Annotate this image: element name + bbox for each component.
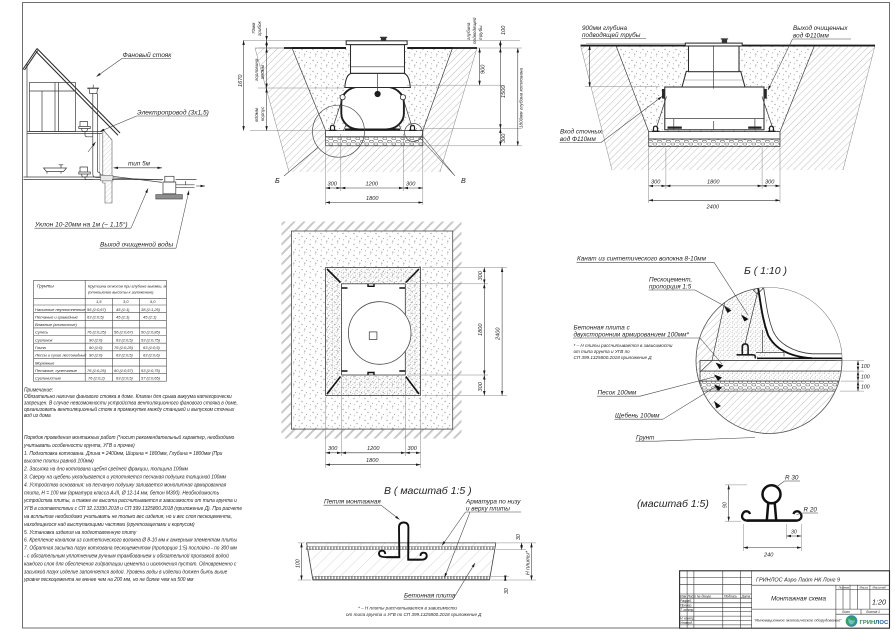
- svg-text:1800: 1800: [366, 458, 379, 464]
- svg-text:Канат из синтетического волокн: Канат из синтетического волокна 8-10мм: [577, 256, 707, 263]
- svg-text:100: 100: [501, 25, 507, 35]
- svg-text:Насыпные неуплотненные: Насыпные неуплотненные: [35, 307, 86, 312]
- svg-text:60 (1:0,57): 60 (1:0,57): [114, 368, 134, 373]
- svg-text:300: 300: [765, 179, 775, 185]
- svg-text:Лессы и сухие лессовидные: Лессы и сухие лессовидные: [34, 353, 87, 358]
- svg-text:корпус: корпус: [260, 106, 265, 121]
- svg-text:45 (1:1): 45 (1:1): [143, 315, 157, 320]
- svg-text:Петля монтажная: Петля монтажная: [324, 499, 381, 506]
- svg-text:1500: 1500: [501, 85, 507, 98]
- svg-text:600мм: 600мм: [254, 107, 259, 122]
- svg-text:Крутизна откосов при глубине в: Крутизна откосов при глубине выемки, м: [88, 284, 166, 289]
- svg-text:1,5: 1,5: [96, 299, 102, 304]
- svg-text:Масштаб: Масштаб: [873, 585, 887, 589]
- svg-text:учитывать особенности грунта,: учитывать особенности грунта, УГВ и проч…: [23, 443, 135, 449]
- svg-text:R 30: R 30: [785, 475, 799, 482]
- svg-text:100: 100: [296, 559, 302, 568]
- svg-text:Бетонная плита: Бетонная плита: [404, 593, 456, 600]
- svg-text:Арматура по низу: Арматура по низу: [465, 499, 521, 506]
- svg-text:тип 5м: тип 5м: [128, 161, 151, 168]
- svg-text:1670: 1670: [238, 74, 244, 87]
- svg-text:Литера: Литера: [838, 585, 850, 589]
- svg-text:устройства плиты, а также ее в: устройства плиты, а также ее высота расс…: [23, 497, 237, 504]
- svg-text:(отношение высоты к заложению): (отношение высоты к заложению): [88, 290, 154, 295]
- svg-text:и верху плиты: и верху плиты: [466, 506, 510, 513]
- svg-text:Т. контр.: Т. контр.: [680, 608, 694, 612]
- svg-text:76 (1:0,25): 76 (1:0,25): [114, 345, 134, 350]
- svg-text:Выход очищенных: Выход очищенных: [793, 24, 848, 32]
- svg-text:240: 240: [763, 553, 774, 559]
- svg-text:Порядок проведения монтажных р: Порядок проведения монтажных работ (*нос…: [24, 434, 235, 441]
- svg-text:30: 30: [516, 534, 522, 540]
- svg-text:38 (1:1,25): 38 (1:1,25): [141, 307, 161, 312]
- svg-text:вод Ф110мм: вод Ф110мм: [793, 32, 829, 40]
- svg-text:Б ( 1:10 ): Б ( 1:10 ): [744, 265, 787, 277]
- svg-text:Монтажная схема: Монтажная схема: [771, 596, 827, 603]
- svg-text:на всплытие необходимо учитыв: на всплытие необходимо учитывать не толь…: [24, 514, 232, 520]
- svg-text:800мм: 800мм: [260, 64, 265, 79]
- svg-text:300: 300: [651, 179, 661, 185]
- svg-text:(масштаб 1:5): (масштаб 1:5): [637, 498, 709, 510]
- svg-text:76 (1:0,2): 76 (1:0,2): [88, 376, 105, 381]
- svg-text:Н. контр.: Н. контр.: [680, 617, 695, 621]
- svg-text:300: 300: [501, 133, 507, 143]
- svg-text:Суглинок: Суглинок: [35, 337, 53, 342]
- svg-text:R 20: R 20: [804, 507, 818, 514]
- svg-text:Щебень 100мм: Щебень 100мм: [615, 412, 660, 420]
- svg-text:Электропровод (3х1,5): Электропровод (3х1,5): [137, 109, 209, 117]
- svg-text:50 (1:0,85): 50 (1:0,85): [141, 330, 161, 335]
- svg-text:300: 300: [478, 270, 484, 280]
- svg-text:1. Подготовка котлована. Длина: 1. Подготовка котлована. Длина = 2400мм,…: [24, 451, 223, 457]
- svg-text:1800: 1800: [478, 323, 484, 336]
- svg-text:плита, Н = 100 мм (арматура кл: плита, Н = 100 мм (арматура класса А-III…: [24, 490, 219, 496]
- svg-text:53 (1:0,75): 53 (1:0,75): [141, 337, 161, 342]
- svg-text:Лист: Лист: [687, 594, 697, 598]
- svg-text:горловина: горловина: [254, 58, 259, 81]
- svg-text:Вход сточных: Вход сточных: [560, 128, 603, 136]
- svg-text:90 (1:0): 90 (1:0): [89, 345, 103, 350]
- svg-text:63 (1:0,5): 63 (1:0,5): [116, 337, 133, 342]
- svg-text:Листов 1: Листов 1: [865, 610, 880, 614]
- svg-text:5. Установка изделия на подгот: 5. Установка изделия на подготовленную п…: [24, 530, 137, 536]
- svg-text:Песок 100мм: Песок 100мм: [598, 390, 637, 397]
- svg-text:глубина: глубина: [466, 22, 471, 40]
- svg-text:ГРИНЛОС Аэро Лайт НК Лонг 9: ГРИНЛОС Аэро Лайт НК Лонг 9: [756, 577, 840, 584]
- svg-text:53 (1:0,75): 53 (1:0,75): [141, 368, 161, 373]
- svg-text:2400: 2400: [706, 205, 720, 211]
- svg-text:90 (1:0): 90 (1:0): [89, 353, 103, 358]
- svg-text:находящегося над выступающими: находящегося над выступающими частями (г…: [24, 522, 195, 528]
- svg-text:1800: 1800: [366, 196, 379, 202]
- svg-text:Супесь: Супесь: [35, 330, 48, 335]
- svg-text:Разраб.: Разраб.: [680, 599, 692, 603]
- svg-text:Провер.: Провер.: [680, 603, 692, 607]
- svg-text:Суглинистые: Суглинистые: [35, 376, 62, 381]
- svg-text:Подпись: Подпись: [724, 594, 737, 598]
- svg-text:запрещен. В случае невозможнос: запрещен. В случае невозможности устройс…: [23, 399, 238, 406]
- svg-text:засыпкой пазух изделие заполня: засыпкой пазух изделие заполняется водой…: [23, 568, 227, 575]
- svg-text:от типа грунта и УГВ по СП 399: от типа грунта и УГВ по СП 399.1325800.2…: [346, 612, 482, 617]
- svg-text:45 (1:1): 45 (1:1): [116, 307, 130, 312]
- svg-text:56 (1:0,67): 56 (1:0,67): [87, 307, 107, 312]
- svg-text:двухсторонним армированием 100: двухсторонним армированием 100мм*: [574, 331, 690, 339]
- svg-text:Утверд.: Утверд.: [680, 621, 693, 625]
- svg-text:Дата: Дата: [741, 594, 751, 598]
- svg-text:63 (1:0,6): 63 (1:0,6): [143, 353, 160, 358]
- svg-text:70мм: 70мм: [251, 22, 256, 34]
- svg-text:- с обязательным уплотнением р: - с обязательным уплотнением ручным трам…: [24, 552, 229, 559]
- svg-text:1:20: 1:20: [872, 598, 886, 607]
- svg-text:Грунты: Грунты: [37, 284, 54, 289]
- svg-text:Обязательно наличие фанового с: Обязательно наличие фанового стояка в до…: [24, 394, 232, 400]
- svg-text:3,0: 3,0: [123, 299, 129, 304]
- svg-text:1800: 1800: [707, 179, 720, 185]
- svg-text:Песчаные, супесчаные: Песчаные, супесчаные: [35, 368, 78, 373]
- svg-text:В: В: [461, 176, 466, 185]
- svg-text:100: 100: [861, 374, 870, 380]
- svg-text:300: 300: [328, 182, 338, 188]
- svg-text:Пескоцемент,: Пескоцемент,: [649, 277, 692, 284]
- svg-text:76 (1:0,25): 76 (1:0,25): [87, 330, 107, 335]
- svg-text:каждого слоя для обеспечения г: каждого слоя для обеспечения гидратации …: [24, 561, 237, 567]
- svg-text:1200: 1200: [366, 182, 379, 188]
- svg-text:7. Обратная засыпка пазух котл: 7. Обратная засыпка пазух котлована песк…: [24, 544, 237, 551]
- svg-text:вод Ф110мм: вод Ф110мм: [560, 135, 596, 143]
- svg-text:Грунт: Грунт: [636, 435, 654, 442]
- svg-text:Влажные (глинистые): Влажные (глинистые): [35, 322, 77, 327]
- svg-text:300: 300: [328, 446, 338, 452]
- svg-text:Бетонная плита с: Бетонная плита с: [574, 325, 631, 332]
- svg-text:100: 100: [861, 364, 870, 370]
- svg-text:пропорция 1:5: пропорция 1:5: [649, 284, 692, 291]
- svg-text:Б: Б: [275, 176, 280, 185]
- svg-text:Фановый стояк: Фановый стояк: [123, 51, 173, 59]
- svg-text:Лист: Лист: [841, 610, 850, 614]
- svg-text:2. Засыпка на дно котлована ще: 2. Засыпка на дно котлована щебня средне…: [23, 465, 188, 472]
- svg-text:В ( масштаб 1:5 ): В ( масштаб 1:5 ): [384, 485, 472, 497]
- svg-text:3. Сверху на щебень укладывает: 3. Сверху на щебень укладывается и уплот…: [24, 473, 227, 480]
- svg-text:90 (1:0): 90 (1:0): [89, 337, 103, 342]
- svg-text:от типа грунта и УГВ по: от типа грунта и УГВ по: [574, 349, 631, 354]
- svg-text:30: 30: [791, 529, 797, 535]
- svg-text:90: 90: [723, 502, 729, 508]
- svg-text:2400: 2400: [496, 327, 502, 341]
- svg-text:Песчаные и гравийные: Песчаные и гравийные: [35, 315, 79, 320]
- svg-text:300: 300: [408, 446, 418, 452]
- svg-text:Уклон 10-20мм на 1м (~ 1,15°): Уклон 10-20мм на 1м (~ 1,15°): [34, 221, 128, 229]
- svg-text:№ докум.: № докум.: [697, 594, 712, 598]
- svg-text:300: 300: [406, 182, 416, 188]
- svg-text:подводящей трубы: подводящей трубы: [582, 31, 641, 39]
- svg-text:подводящей: подводящей: [471, 17, 477, 44]
- svg-text:100: 100: [861, 384, 870, 390]
- svg-text:5,0: 5,0: [150, 299, 156, 304]
- svg-text:1200: 1200: [367, 446, 380, 452]
- svg-text:Масса: Масса: [860, 585, 869, 589]
- svg-text:900мм глубина: 900мм глубина: [582, 24, 628, 32]
- svg-text:трубы: трубы: [478, 25, 483, 40]
- svg-text:63 (1:0,5): 63 (1:0,5): [116, 353, 133, 358]
- svg-text:1800мм глубина котлована: 1800мм глубина котлована: [519, 68, 524, 128]
- svg-text:300: 300: [478, 381, 484, 391]
- svg-text:57 (1:0,65): 57 (1:0,65): [141, 376, 161, 381]
- svg-text:6. Крепление канатом из синтет: 6. Крепление канатом из синтетического в…: [24, 538, 237, 544]
- svg-text:ГРИНЛОС: ГРИНЛОС: [860, 620, 889, 626]
- svg-text:30: 30: [504, 588, 510, 594]
- svg-text:"Инновационное экологическое о: "Инновационное экологическое оборудовани…: [754, 618, 842, 623]
- svg-text:Глина: Глина: [35, 345, 47, 350]
- svg-text:56 (1:0,67): 56 (1:0,67): [114, 330, 134, 335]
- svg-text:уровня пескоцемента не менее ч: уровня пескоцемента не менее чем на 200 …: [23, 577, 194, 583]
- svg-text:Примечание:: Примечание:: [24, 387, 54, 393]
- svg-text:* – Н плиты рассчитывается в з: * – Н плиты рассчитывается в зависимости: [574, 343, 673, 348]
- svg-text:организовать вентиляционный ст: организовать вентиляционный стояк в пром…: [24, 406, 235, 413]
- svg-text:63 (1:0,5): 63 (1:0,5): [87, 315, 104, 320]
- svg-text:63 (1:0,5): 63 (1:0,5): [116, 376, 133, 381]
- svg-text:Н плиты*: Н плиты*: [526, 550, 532, 575]
- svg-text:63 (1:0,5): 63 (1:0,5): [143, 345, 160, 350]
- svg-text:Выход очищенной воды: Выход очищенной воды: [100, 241, 173, 249]
- svg-text:грибок: грибок: [257, 20, 262, 36]
- svg-text:* – Н плиты рассчитывается в з: * – Н плиты рассчитывается в зависимости: [358, 606, 457, 611]
- svg-text:4. Устройство основания: на пе: 4. Устройство основания: на песчаную под…: [24, 481, 227, 488]
- svg-text:вод из дома: вод из дома: [24, 413, 51, 419]
- svg-text:УГВ в соответствии с СП 32.133: УГВ в соответствии с СП 32.13330.2018 и …: [24, 506, 242, 512]
- svg-text:Изм: Изм: [680, 594, 687, 598]
- svg-text:СП 399.1325800.2018 приложение: СП 399.1325800.2018 приложение Д: [574, 355, 653, 360]
- svg-text:высоте плиты равной 100мм): высоте плиты равной 100мм): [24, 458, 94, 465]
- svg-text:900: 900: [481, 64, 487, 74]
- svg-text:Моренные: Моренные: [35, 360, 55, 365]
- svg-text:45 (1:1): 45 (1:1): [116, 315, 130, 320]
- svg-text:76 (1:0,25): 76 (1:0,25): [87, 368, 107, 373]
